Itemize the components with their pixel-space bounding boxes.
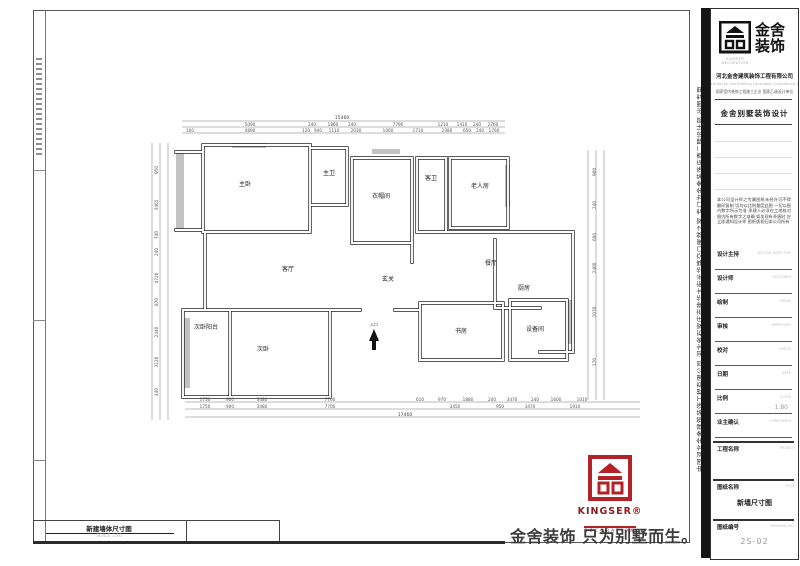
separator-bar [701,8,710,558]
field-label: 比例 [717,394,728,402]
dim-label: 900 [592,168,597,176]
dim-label: 4720 [154,272,159,283]
notice-paragraph: 本公司设计师之专属图纸未经许可不得翻印复制 切勿以比例量度此图 一切以图内数字所… [717,197,791,225]
frame-tick [33,170,45,171]
company-name-en: He Bei Jin She Building Decoration Engin… [711,82,798,86]
dim-label: 940 [314,128,322,133]
dim-label: 1010 [577,397,588,402]
dim-label: 3480 [257,404,268,409]
title-box-divider [186,521,187,542]
drawing-title: 新建墙体尺寸图 [34,523,184,533]
sheet-name-label: 图纸名称 [717,483,739,491]
sheet-no-en: DRAWING NO. [770,524,795,528]
rule-thin [715,157,792,158]
entrance-arrow-icon [369,329,379,350]
dim-label: 240 [592,201,597,209]
dim-label: 1760 [489,128,500,133]
dim-label: 240 [154,248,159,256]
dim-label: 900 [226,404,234,409]
dim-label: 240 [308,122,316,127]
room-label-equipment: 设备间 [526,325,544,333]
field-label: 业主确认 [717,418,739,426]
dim-left-chain: 950 3465 740 240 4720 870 2440 3120 440 [154,166,159,396]
dim-label: 1210 [438,122,449,127]
sheet-name: 新墙尺寸图 [711,498,798,508]
dim-label: 610 [416,397,424,402]
dim-label: 3480 [257,397,268,402]
dim-label: 7700 [325,397,336,402]
room-label-kitchen: 厨房 [518,284,530,292]
dim-label: 240 [348,122,356,127]
field-date: 日期 DATE [715,367,792,390]
dim-label: 7700 [325,404,336,409]
walls [176,145,573,397]
dim-label: 970 [438,397,446,402]
sheet-number: 2S-02 [711,537,798,546]
dim-label: 440 [154,388,159,396]
field-approved: 审核 APPROVED [715,319,792,342]
room-label-foyer: 玄关 [382,275,394,283]
entrance-label: 入口 [370,322,378,327]
dim-label: 1410 [457,122,468,127]
dim-label: 17460 [398,412,413,418]
field-value: 1:80 [775,404,788,411]
dim-label: 1880 [463,397,474,402]
dim-label: 1110 [329,128,340,133]
room-label-study: 书房 [455,327,467,335]
dim-label: 1860 [328,122,339,127]
dim-label: 2760 [488,122,499,127]
field-designer: 设计师 DESIGNER [715,271,792,294]
dim-label: 240 [476,128,484,133]
frame-column-line [45,10,46,541]
field-label: 绘制 [717,298,728,306]
dim-label: 15460 [335,115,350,121]
field-label: 校对 [717,346,728,354]
rule-thin [715,173,792,174]
dim-label: 2380 [442,128,453,133]
floor-plan: 入口 主卧 主卫 衣帽间 客卫 老人房 客厅 玄关 餐厅 厨房 书房 设备间 次… [140,100,670,445]
field-label: 设计师 [717,274,734,282]
sheet-no-label: 图纸编号 [717,523,739,531]
field-check: 校对 CHECK [715,343,792,366]
dim-label: 3470 [525,404,536,409]
room-label-master-bath: 主卫 [323,169,335,177]
field-draw: 绘制 DRAW [715,295,792,318]
field-en: DESIGNER [772,275,791,279]
dim-label: 240 [531,397,539,402]
field-label: 日期 [717,370,728,378]
section-separator [713,479,794,481]
brand-line2: 装饰 [755,38,785,54]
room-label-cloakroom: 衣帽间 [372,192,390,200]
room-label-master-bedroom: 主卧 [239,180,251,188]
field-en: CONFIRMED [769,419,791,423]
field-en: SCALE [779,395,791,399]
field-label: 设计主持 [717,250,739,258]
dim-label: 650 [463,128,471,133]
company-name: 河北金舍建筑装饰工程有限公司 [711,72,798,80]
dim-label: 3470 [507,397,518,402]
dim-label: 100 [186,128,194,133]
field-en: DATE [782,371,791,375]
dim-label: 600 [592,233,597,241]
sheet-name-en: TITLE [785,484,795,488]
brand-line1: 金舍 [755,22,785,38]
dim-label: 3465 [154,199,159,210]
room-label-living: 客厅 [282,265,294,273]
dim-label: 2440 [154,326,159,337]
field-label: 审核 [717,322,728,330]
field-design-director: 设计主持 DESIGN DIRECTOR [715,247,792,270]
qualification-line: 国家室内装饰工程施工企业 国家乙级设计单位 [711,89,798,95]
frame-stamp-mark [36,58,42,158]
frame-tick [33,460,45,461]
dept-title: 金舍别墅装饰设计 [711,108,798,119]
brand-name: 金舍 装饰 [755,22,785,54]
dim-label: 900 [226,397,234,402]
field-en: CHECK [779,347,791,351]
section-separator [713,441,794,443]
dim-label: 2030 [351,128,362,133]
dim-label: 950 [496,404,504,409]
rule [715,124,792,125]
project-en: PROJECT [779,446,795,450]
dim-label: 2070 [592,306,597,317]
dim-label: 3450 [450,404,461,409]
dim-label: 1600 [551,397,562,402]
room-label-dining: 餐厅 [485,259,497,267]
dim-label: 5090 [245,122,256,127]
drawing-title-box: 新建墙体尺寸图 SCALE 1:80 [33,520,280,543]
rule [715,99,792,100]
room-label-balcony: 次卧阳台 [194,323,218,331]
field-scale: 比例 SCALE 1:80 [715,391,792,414]
dim-label: 1910 [570,404,581,409]
field-en: DESIGN DIRECTOR [757,251,791,255]
dim-label: 950 [154,166,159,174]
dim-label: 7790 [393,122,404,127]
dim-label: 1750 [200,397,211,402]
rule-thin [715,141,792,142]
dim-label: 740 [154,231,159,239]
jinshe-logo-icon [719,21,751,55]
dim-label: 170 [592,358,597,366]
rule-thin [715,189,792,190]
kingser-logo-mark [588,455,632,503]
dim-label: 1060 [383,128,394,133]
dim-label: 1710 [413,128,424,133]
window-hatches [176,143,575,388]
section-separator [713,519,794,521]
dim-label: 870 [154,298,159,306]
dim-label: 3120 [154,356,159,367]
drawing-sheet: 入口 主卧 主卫 衣帽间 客卫 老人房 客厅 玄关 餐厅 厨房 书房 设备间 次… [0,0,800,566]
field-en: DRAW [780,299,791,303]
room-label-elder-room: 老人房 [471,182,489,190]
title-block: 金舍 装饰 KINGSER DECORATION 河北金舍建筑装饰工程有限公司 … [710,8,799,560]
logo-subtext: KINGSER DECORATION [717,57,753,65]
dim-label: 2400 [592,262,597,273]
bottom-thick-rule [33,541,505,544]
field-en: APPROVED [771,323,791,327]
field-owner-confirm: 业主确认 CONFIRMED [715,415,792,438]
dimension-lines [152,121,640,420]
project-label: 工程名称 [717,445,739,453]
dim-label: 1750 [200,404,211,409]
dim-label: 4890 [245,128,256,133]
dim-label: 240 [488,397,496,402]
dim-label: 120 [302,128,310,133]
room-label-guest-bath: 客卫 [425,174,437,182]
brand-slogan: 金舍装饰 只为别墅而生。 [510,523,700,547]
drawing-scale: SCALE 1:80 [34,534,184,539]
room-label-second-bedroom: 次卧 [257,345,269,353]
kingser-en: KINGSER® [565,507,655,517]
frame-tick [33,320,45,321]
dim-label: 240 [473,122,481,127]
